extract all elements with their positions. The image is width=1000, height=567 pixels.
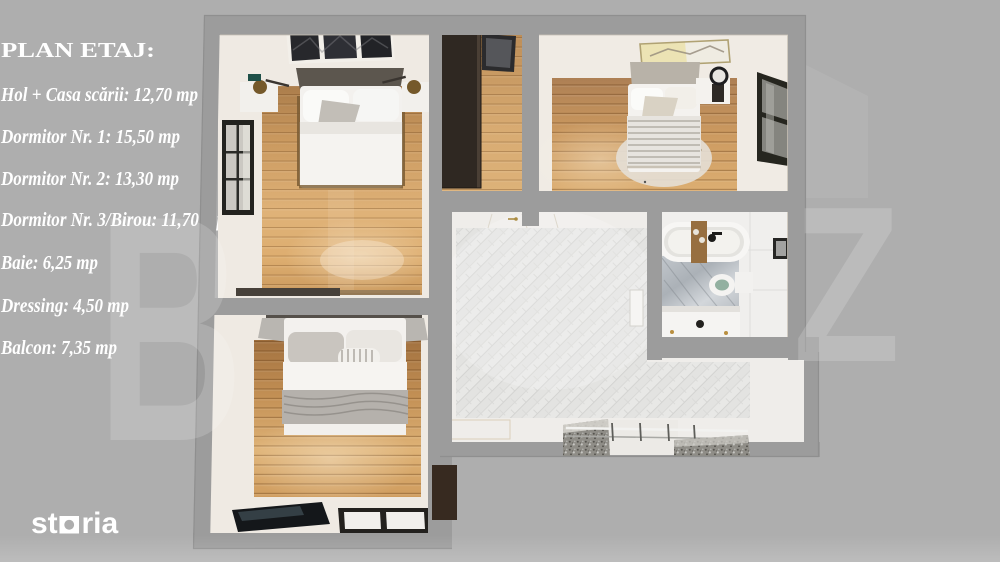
svg-text:st: st: [31, 507, 58, 540]
svg-text:Hol + Casa scării: 12,70 mp: Hol + Casa scării: 12,70 mp: [0, 84, 198, 106]
svg-text:B: B: [97, 149, 244, 509]
svg-text:Baie: 6,25 mp: Baie: 6,25 mp: [0, 252, 98, 274]
svg-text:PLAN ETAJ:: PLAN ETAJ:: [1, 38, 155, 62]
svg-text:Z: Z: [793, 161, 900, 408]
svg-text:ria: ria: [82, 507, 119, 540]
svg-text:Dormitor Nr. 1: 15,50 mp: Dormitor Nr. 1: 15,50 mp: [0, 126, 180, 148]
